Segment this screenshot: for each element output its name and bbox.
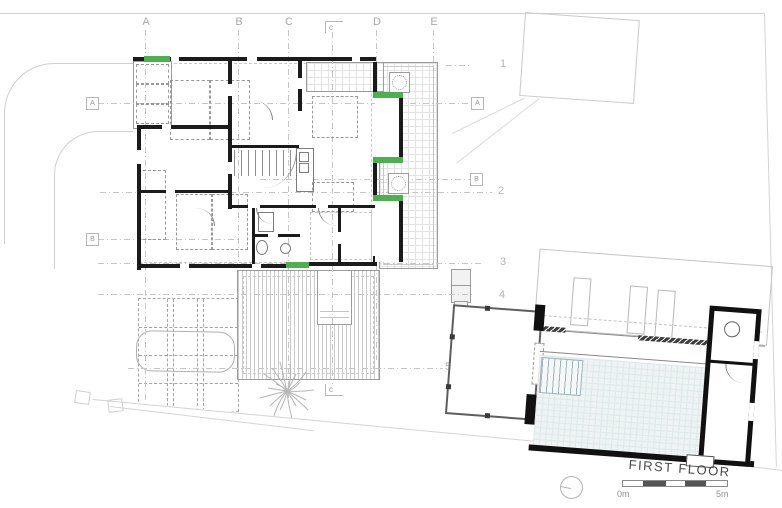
deck-tick bbox=[485, 306, 490, 311]
grid-number-1: 1 bbox=[500, 58, 506, 70]
deck-tick bbox=[450, 334, 455, 339]
door-gap bbox=[268, 234, 278, 237]
wardrobe-dashed bbox=[136, 104, 169, 124]
grid-line-1 bbox=[446, 65, 470, 66]
green-threshold bbox=[373, 157, 403, 163]
section-marker-c-bottom: c bbox=[325, 384, 343, 396]
washbasin bbox=[280, 243, 291, 254]
wall-niche-east bbox=[399, 98, 403, 157]
toilet bbox=[256, 240, 268, 255]
wall-interior bbox=[252, 208, 255, 266]
grid-label-B: B bbox=[232, 16, 246, 28]
wardrobe-dashed bbox=[136, 84, 169, 104]
roof-skylight bbox=[654, 290, 676, 339]
window-gap bbox=[180, 264, 189, 268]
wall-east bbox=[373, 163, 377, 195]
deck-step-line bbox=[320, 317, 349, 318]
parking-line bbox=[139, 327, 238, 328]
grid-number-2: 2 bbox=[498, 185, 504, 197]
north-needle bbox=[560, 486, 571, 489]
planter-icon bbox=[388, 173, 409, 194]
wall-interior bbox=[137, 125, 232, 129]
section-line-B-right bbox=[260, 179, 470, 180]
grid-line-4 bbox=[98, 294, 474, 295]
window-gap bbox=[137, 150, 141, 164]
neighbor-building-outline bbox=[519, 12, 640, 104]
grid-label-E: E bbox=[427, 16, 441, 28]
planter-plant bbox=[391, 176, 406, 191]
deck-step-line bbox=[320, 311, 349, 312]
wall-interior bbox=[137, 190, 230, 193]
door-gap bbox=[166, 190, 175, 193]
door-gap bbox=[228, 84, 232, 96]
wall-interior bbox=[232, 145, 299, 148]
driveway-curve-inner bbox=[54, 131, 134, 269]
green-window-sill bbox=[144, 56, 170, 62]
door-gap bbox=[162, 125, 171, 129]
section-marker-B-right: B bbox=[470, 173, 483, 186]
section-marker-c-top: c bbox=[325, 21, 343, 33]
grid-line-C bbox=[288, 30, 289, 398]
grid-label-A: A bbox=[139, 16, 153, 28]
window-gap bbox=[753, 341, 759, 359]
pool-house-group: FIRST FLOOR bbox=[434, 240, 782, 500]
window-gap bbox=[171, 57, 179, 61]
grid-line-E bbox=[433, 30, 434, 268]
wall-east bbox=[373, 62, 377, 94]
wardrobe-dashed bbox=[138, 170, 166, 240]
niche-floor bbox=[375, 201, 399, 262]
green-threshold bbox=[373, 195, 403, 201]
door-gap bbox=[338, 232, 341, 244]
wall-south-east bbox=[309, 262, 375, 266]
site-stone-marker bbox=[74, 390, 91, 405]
door-gap bbox=[248, 205, 260, 208]
deck-stair-void bbox=[317, 270, 352, 325]
car-outline bbox=[136, 330, 236, 373]
wardrobe-dashed bbox=[136, 64, 169, 84]
window-gap bbox=[252, 264, 261, 268]
deck-tick bbox=[485, 413, 490, 418]
window-gap bbox=[247, 57, 257, 61]
bed-dashed bbox=[170, 80, 210, 140]
site-boundary-top bbox=[0, 13, 765, 14]
furniture-dashed bbox=[312, 96, 358, 138]
parking-line bbox=[139, 383, 238, 384]
kitchen-sink bbox=[299, 152, 309, 162]
ceiling-dashed bbox=[310, 212, 372, 260]
tree-icon bbox=[256, 360, 318, 422]
wall-niche-east bbox=[399, 201, 403, 262]
wall-west bbox=[137, 125, 141, 270]
window-gap bbox=[352, 57, 360, 61]
section-marker-A-left: A bbox=[86, 97, 99, 110]
deck-tick bbox=[446, 384, 451, 389]
connector-line bbox=[456, 98, 539, 163]
grid-label-C: C bbox=[282, 16, 296, 28]
grid-label-D: D bbox=[370, 16, 384, 28]
site-stone-marker bbox=[107, 398, 123, 412]
bed-dashed bbox=[176, 194, 212, 250]
window-gap bbox=[748, 403, 754, 421]
wall-stub bbox=[533, 304, 545, 331]
green-window-sill bbox=[286, 262, 309, 268]
wall-south bbox=[137, 264, 309, 268]
niche-floor bbox=[375, 98, 399, 157]
door-gap bbox=[228, 162, 232, 174]
section-marker-A-right: A bbox=[471, 97, 484, 110]
door-gap bbox=[316, 205, 328, 208]
pool-stairs bbox=[539, 357, 584, 396]
planter-icon bbox=[389, 72, 410, 93]
planter-plant bbox=[392, 75, 407, 90]
green-threshold bbox=[373, 92, 403, 98]
door-gap bbox=[298, 78, 302, 89]
roof-skylight bbox=[626, 285, 648, 334]
floor-plan-drawing: A B C D E c c A B A B 1 2 3 4 5 bbox=[0, 0, 782, 508]
section-marker-B-left: B bbox=[86, 233, 99, 246]
kitchen-sink bbox=[299, 163, 309, 173]
